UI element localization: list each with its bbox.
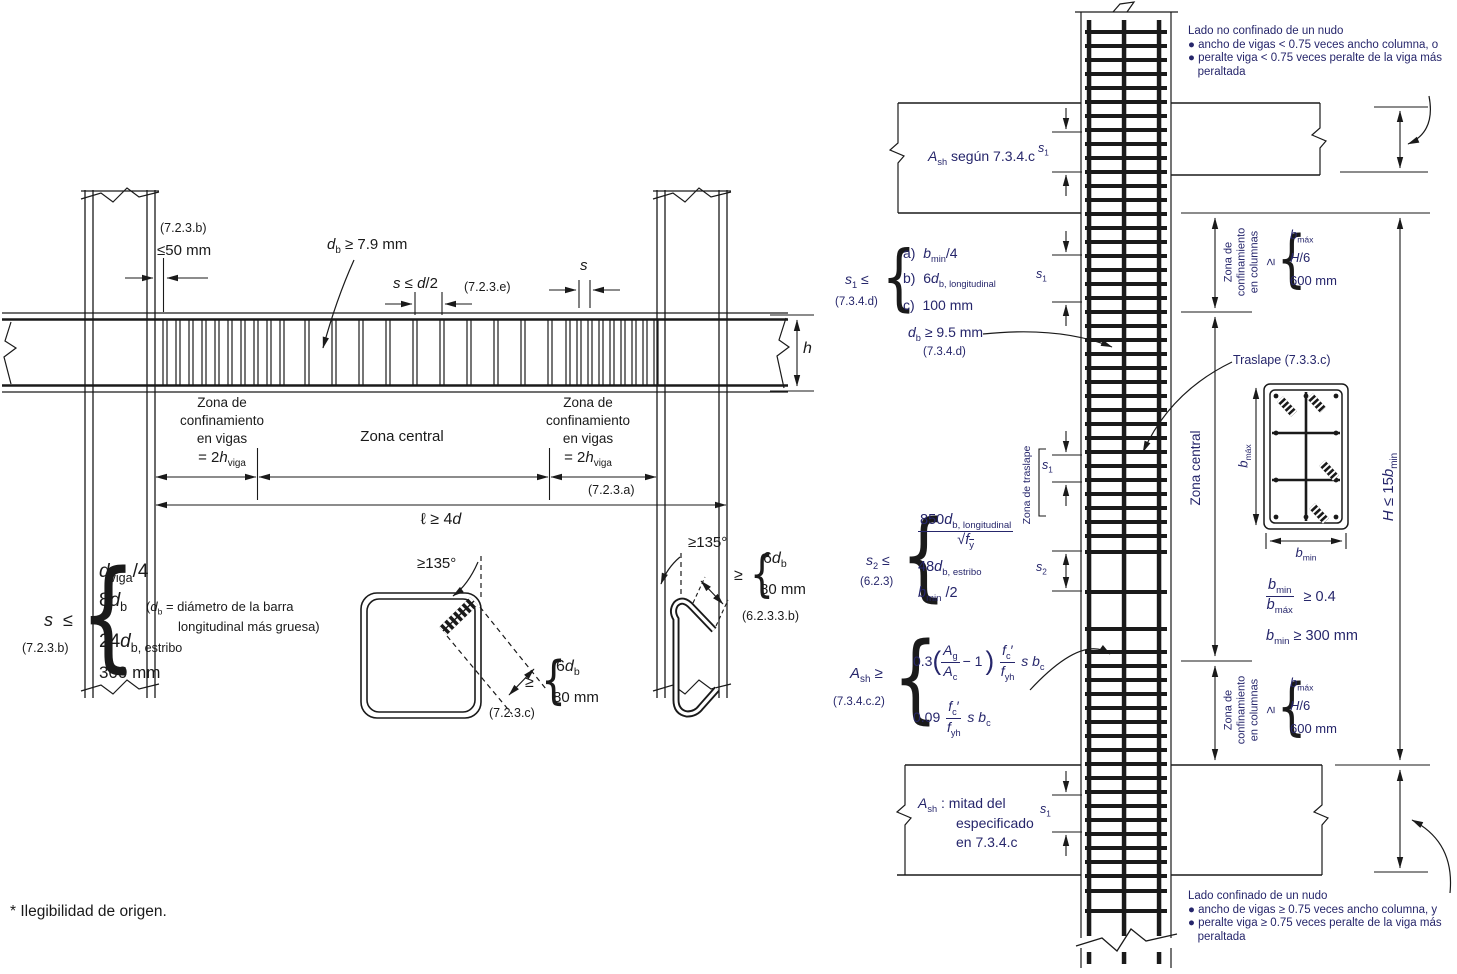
beam-stirrups [163,320,658,386]
hook-ge-crosstie: ≥ [734,567,743,585]
confined-joint-note: Lado confinado de un nudo● ancho de viga… [1188,890,1442,944]
central-zone-column-label: Zona central [1188,430,1204,505]
bmin-section-label: bmin [1295,546,1316,563]
s-limits-lhs: s ≤ [44,610,73,631]
ratio-denominator: bmáx [1266,597,1294,616]
stirrup-hook-detail [361,556,546,718]
confinement-zone-beam-right-label: Zona deconfinamientoen vigas [546,394,630,448]
ratio-numerator: bmin [1266,577,1294,597]
ash-limits-lhs: Ash ≥ [850,665,883,685]
ash-formula-1: 0.3(AgAc− 1)fc′fyhs bc [913,642,1045,683]
s1-dimensions [1052,108,1082,856]
ash-bottom-line3: en 7.3.4.c [956,834,1018,850]
lap-zone-label: Zona de traslape [1021,446,1033,525]
ratio-fraction: bmin bmáx [1266,577,1294,617]
conf-upper-item-2: H/6 [1290,251,1310,266]
s-limit-item-1: dviga/4 [99,561,148,585]
s1-dim-label-bottom: s1 [1040,802,1051,819]
s2-limit-item-2: 48db, estribo [918,559,1013,578]
central-zone-beam-label: Zona central [360,428,443,445]
s2-dim-label: s2 [1036,560,1047,577]
max-50mm-label: ≤50 mm [157,242,211,259]
confinement-zone-beam-left-label: Zona deconfinamientoen vigas [180,394,264,448]
hook-item1-crosstie: 6db [763,550,787,570]
s-limit-item-4: 300 mm [99,663,160,683]
ratio-rhs: ≥ 0.4 [1304,589,1336,605]
s-spacing-label: s [580,257,588,274]
aspect-ratio-limit: bmin bmáx ≥ 0.4 [1266,577,1336,617]
s1-limit-item-a: a) bmin/4 [903,245,958,264]
s2-limit-item-3: bmin /2 [918,585,1013,604]
s1-limit-item-b: b) 6db, longitudinal [903,270,996,289]
s-le-d2-label: s ≤ d/2 [393,275,438,292]
db-min-column-ref: (7.3.4.d) [923,346,966,360]
s1-limits-lhs: s1 ≤ [845,271,869,290]
ref-6-2-3-3-b: (6.2.3.3.b) [742,609,799,623]
conf-zone-column-lower-label: Zona deconfinamientoen columnas [1223,676,1262,745]
h-depth-label: h [803,340,812,358]
ref-7-2-3-c: (7.2.3.c) [489,706,535,720]
ref-7-2-3-b-top: (7.2.3.b) [160,221,207,235]
db-note-line2: longitudinal más gruesa) [178,620,320,635]
conf-lower-item-3: 600 mm [1290,722,1337,737]
s2-fraction: 850db, longitudinal √fy [918,512,1013,552]
ash-formula-2: 0.09fc′fyhs bc [913,698,991,739]
ash-bottom-line2: especificado [956,815,1034,831]
conf-zone-column-upper-label: Zona deconfinamientoen columnas [1223,228,1262,297]
s-limit-item-3: 24db, estribo [99,631,182,655]
db-note-line1: (db = diámetro de la barra [146,600,294,617]
bmin-300-label: bmin ≥ 300 mm [1266,628,1358,647]
s1-limits-ref: (7.3.4.d) [835,296,878,310]
ref-7-2-3-a: (7.2.3.a) [588,483,635,497]
hook-item2-crosstie: 80 mm [760,581,806,598]
bmax-section-label: bmáx [1236,444,1253,467]
s2-limits-lhs: s2 ≤ [866,552,890,571]
s2-limits-ref: (6.2.3) [860,576,893,590]
crosstie-hooks-hatched [1280,396,1336,521]
s2-numerator: 850db, longitudinal [918,512,1013,532]
crosstie-hook-detail [661,553,728,714]
hook-angle-stirrup: ≥135° [417,555,456,572]
conf-lower-item-1: bmáx [1290,676,1313,693]
hook-item2-stirrup: 80 mm [553,689,599,706]
figure-canvas: (7.2.3.b) ≤50 mm db ≥ 7.9 mm s ≤ d/2 (7.… [0,0,1457,974]
unconfined-joint-note: Lado no confinado de un nudo● ancho de v… [1188,25,1442,79]
s-limits-ref: (7.2.3.b) [22,641,69,655]
ref-7-2-3-e: (7.2.3.e) [464,280,511,294]
hook-item1-stirrup: 6db [556,658,580,678]
column-cross-section [1256,384,1348,549]
s2-denominator: √fy [918,532,1013,551]
s-limit-item-2: 8db [99,590,127,614]
hook-ge-stirrup: ≥ [525,674,534,692]
hook-angle-crosstie: ≥135° [688,534,727,551]
conf-upper-item-3: 600 mm [1290,274,1337,289]
line-work [0,0,1457,974]
db-min-beam-label: db ≥ 7.9 mm [327,236,407,256]
s1-dim-label-conf: s1 [1036,267,1047,284]
s1-limit-item-c: c) 100 mm [903,297,973,313]
ash-top-label: Ash según 7.3.4.c [928,148,1035,167]
s1-dim-label-node: s1 [1038,141,1049,158]
conf-upper-item-1: bmáx [1290,228,1313,245]
span-min-label: ℓ ≥ 4d [421,511,462,529]
ash-bottom-line1: Ash : mitad del [918,795,1006,814]
traslape-label: Traslape (7.3.3.c) [1233,353,1331,367]
conf-lower-item-2: H/6 [1290,699,1310,714]
s1-dim-label-lap: s1 [1042,458,1053,475]
confinement-zone-beam-left-eq: = 2hviga [198,449,246,469]
footnote: * Ilegibilidad de origen. [10,903,167,921]
db-min-column-label: db ≥ 9.5 mm [908,324,983,343]
confinement-zone-beam-right-eq: = 2hviga [564,449,612,469]
H-limit-label: H ≤ 15bmin [1380,453,1400,521]
ash-limits-ref: (7.3.4.c.2) [833,696,885,710]
